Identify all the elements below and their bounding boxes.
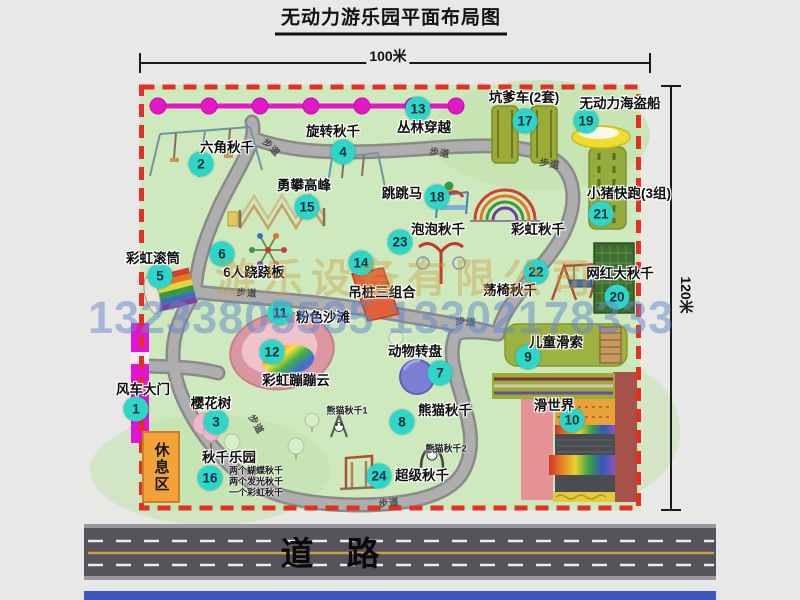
park-map-page: 无动力游乐园平面布局图 100米 120米 休息区 1风车大门2六角秋千3樱花树… xyxy=(0,0,800,600)
rest-area-label: 休息区 xyxy=(151,442,172,493)
kids-zipline-icon xyxy=(505,324,627,366)
rest-area-block: 休息区 xyxy=(142,431,180,503)
big-swing-net-icon xyxy=(594,243,634,313)
bottom-blue-strip xyxy=(84,591,716,600)
pirate-ship-icon xyxy=(572,126,630,148)
height-dimension-label: 120米 xyxy=(676,273,696,316)
piggy-run-icon xyxy=(589,147,626,229)
page-title: 无动力游乐园平面布局图 xyxy=(275,3,507,36)
road xyxy=(84,524,716,600)
road-label: 道 路 xyxy=(281,527,380,575)
width-dimension-label: 100米 xyxy=(366,46,409,66)
animal-turntable-icon xyxy=(400,360,434,394)
